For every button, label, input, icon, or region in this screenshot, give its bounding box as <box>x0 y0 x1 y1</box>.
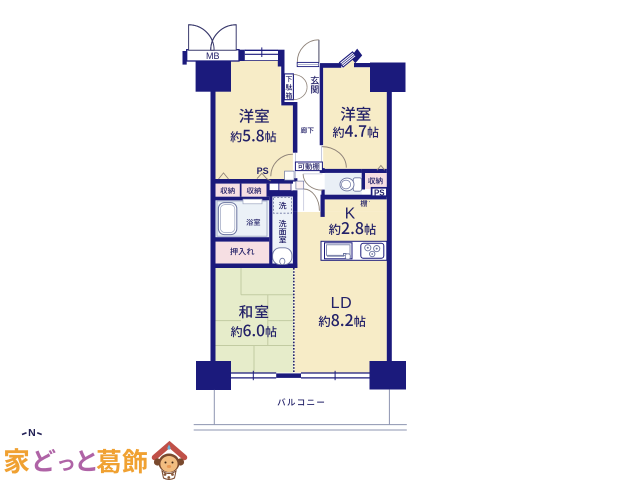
svg-text:K: K <box>345 205 356 222</box>
svg-text:N: N <box>28 427 36 439</box>
svg-text:PS: PS <box>374 188 385 197</box>
svg-text:LD: LD <box>331 295 352 312</box>
svg-text:PS: PS <box>257 166 269 176</box>
svg-text:MB: MB <box>206 51 220 61</box>
